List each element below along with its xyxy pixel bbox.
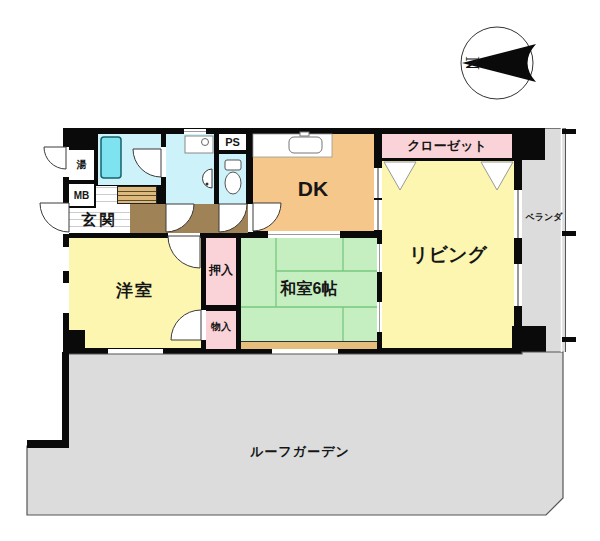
room-washroom [166, 134, 214, 204]
dk-label: DK [283, 176, 343, 202]
floor-plan: 湯 MB 玄関 PS [0, 0, 600, 541]
storage-label: 物入 [206, 320, 236, 333]
western-door-gap [168, 233, 200, 238]
room-meter-box: MB [69, 184, 94, 206]
veranda [522, 128, 566, 352]
western-window-bottom [108, 349, 163, 355]
room-toilet [219, 154, 246, 204]
compass: N [461, 27, 536, 99]
bathroom-door-gap [161, 147, 166, 177]
dk-living-sliding-2 [374, 200, 382, 230]
bath-small-door-gap [63, 147, 69, 177]
room-bath-small: 湯 [69, 150, 94, 180]
corridor [130, 204, 248, 233]
pillar-bottom-right [512, 326, 546, 355]
garden-wall-left [62, 352, 69, 448]
japanese-living-sliding-2 [377, 302, 382, 332]
room-entrance: 玄関 [69, 208, 130, 233]
living-window-veranda-2 [514, 264, 522, 306]
pillar-bottom-left [63, 330, 85, 355]
western-window-left-2 [63, 283, 69, 313]
japanese-living-sliding-1 [377, 244, 382, 272]
roof-garden-label: ルーフガーデン [240, 443, 360, 461]
room-pipe-space: PS [219, 134, 246, 150]
dk-japanese-sliding-door [268, 231, 340, 238]
entrance-door-gap [63, 203, 69, 234]
meter-box-label: MB [74, 190, 90, 201]
entrance-label: 玄関 [82, 211, 118, 230]
veranda-label: ベランダ [522, 211, 566, 223]
corridor-dk-door-gap [248, 204, 253, 232]
compass-north-arrow [462, 44, 536, 82]
western-room-label: 洋室 [103, 279, 167, 301]
compass-north-label: N [462, 56, 483, 70]
garden-wall-stub [27, 440, 68, 448]
washroom-window-top [184, 129, 206, 134]
living-window-veranda-1 [514, 190, 522, 238]
japanese-room-label: 和室6帖 [271, 279, 347, 299]
pipe-space-label: PS [225, 136, 240, 148]
compass-circle [461, 27, 533, 99]
pillar-top-right [512, 128, 545, 160]
closet-label: クローゼット [382, 137, 512, 155]
japanese-window-bottom [272, 349, 338, 355]
japanese-room-wood-strip [241, 341, 377, 349]
entrance-step [117, 186, 157, 204]
dk-living-sliding-1 [374, 168, 382, 198]
bath-small-label: 湯 [77, 158, 87, 172]
room-bathroom [98, 134, 161, 185]
roof-garden [27, 352, 563, 515]
western-window-left-1 [63, 247, 69, 271]
living-label: リビング [402, 243, 494, 267]
oshiire-label: 押入 [206, 263, 236, 278]
